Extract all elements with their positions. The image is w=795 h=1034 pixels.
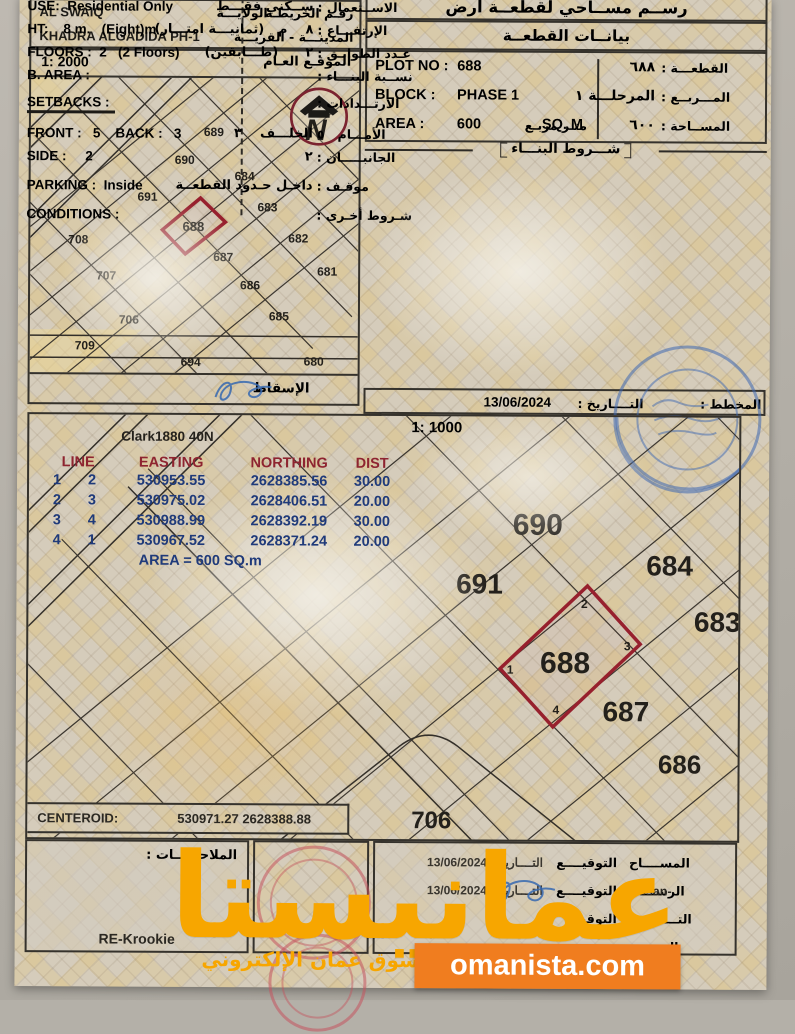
area-row: AREA : 600 SQ. M. متـر مربـع ٦٠٠ المســا… [367,110,765,141]
plot-no-label-ar: القطعـــة : [661,53,761,83]
coord-table-header: LINE EASTING NORTHING DIST [43,454,395,472]
use-ar-value: ســكني فقـــط [216,0,313,19]
barea-ar-label: نســبة البنـــاء : [317,65,419,89]
parking-row: PARKING : Inside داخـل حـدود القطعــة مو… [19,173,421,198]
centeroid-value: 530971.27 2628388.88 [177,811,311,827]
corner-label-2: 2 [581,597,588,611]
plot-label-688: 688 [540,647,590,680]
plot-label-690: 690 [513,509,563,542]
building-conditions-title: شـــروط البنـــاء [507,141,624,158]
plot-label-687: 687 [213,250,233,264]
plot-no-value-ar: ٦٨٨ [630,53,656,82]
plot-label-706: 706 [411,807,451,834]
block-label-ar: المـــربــع : [661,82,761,112]
plot-label-709: 709 [75,338,95,352]
plot-data-heading: بيانــات القطعــة [365,20,767,52]
parking-ar-value: داخـل حـدود القطعــة [175,174,312,198]
ht-ar-value: ٨ م (ثمانيـــة امتـــار) [154,18,313,42]
document-title: رســم مســاحي لقطعــة أرض [365,0,767,22]
plot-no-row: PLOT NO : 688 ٦٨٨ القطعـــة : [367,52,765,83]
notes-label: الملاحظـــات : [146,848,237,863]
coord-table-row: 12530953.552628385.5630.00 [43,470,395,492]
notes-box: الملاحظـــات : RE-Krookie [25,839,250,953]
side-ar-value: ٢ [305,146,313,169]
corner-label-3: 3 [624,639,631,653]
front-back-row: FRONT : 5 BACK : 3 الخلـــف ٣ الأمـــام … [19,121,421,146]
plot-label-686: 686 [240,278,260,292]
plot-label-680: 680 [304,355,324,369]
area-unit-ar: متـر مربـع [525,111,587,140]
coordinates-table: LINE EASTING NORTHING DIST 12530953.5526… [43,454,396,570]
side-row: SIDE : 2 ٢ الجانبـــــان : [19,144,421,169]
back-ar: الخلـــف ٣ [234,122,313,145]
corner-label-1: 1 [507,663,514,677]
floors-row: FLOORS : 2 (2 Floors) ٢ (طـــابقين) عـدد… [19,40,421,65]
col-easting: EASTING [113,455,229,472]
date-label: التــــاريخ : [577,396,643,411]
parking-en: PARKING : Inside [27,173,143,197]
re-krookie-label: RE-Krookie [27,930,247,947]
parking-ar-label: موقـف : [317,175,419,199]
signature-scribble [209,375,299,405]
ht-ar-label: الإرتفـــاع : [317,19,419,43]
checking-label: التــــدقيق [629,908,729,931]
plot-label-691: 691 [456,568,503,599]
floors-ar-value: ٢ (طـــابقين) [205,41,314,65]
plot-no-value: 688 [457,52,481,81]
date-row: 13/06/2024 التــــاريخ : المخطط : [363,388,765,416]
plot-label-684: 684 [646,550,693,581]
plot-label-686: 686 [658,749,702,779]
setbacks-ar-label: الارتـــدادات : [317,92,419,116]
col-line: LINE [43,454,113,470]
side-ar-label: الجانبـــــان : [317,146,419,170]
signature-scribble [485,871,569,915]
ht-en: HT: 8 m. (Eight)m [27,17,156,41]
projection-row: الإسقاط [29,372,357,406]
coord-table-row: 23530975.022628406.5120.00 [43,490,395,512]
omanista-badge: omanista.com [414,943,680,989]
col-northing: NORTHING [229,455,349,472]
use-en: USE: Residential Only [27,0,173,18]
col-dist: DIST [349,456,395,472]
conditions-en: CONDITIONS : [26,202,119,225]
photo-background: AL SWAIQ الولايـــة رقـم الخريطـة KHADRA… [0,0,795,1000]
barea-row: B. AREA : نســبة البنـــاء : [19,63,421,88]
use-row: USE: Residential Only ســكني فقـــط الاس… [19,0,421,19]
survey-date: 13/06/2024 [483,394,551,409]
map-datum: Clark1880 40N [121,429,213,444]
height-row: HT: 8 m. (Eight)m ٨ م (ثمانيـــة امتـــا… [19,17,421,42]
survey-document: AL SWAIQ الولايـــة رقـم الخريطـة KHADRA… [14,0,771,990]
plot-data-table: PLOT NO : 688 ٦٨٨ القطعـــة : BLOCK : PH… [365,50,767,144]
floors-ar-label: عـدد الطوابـق : [317,42,419,66]
plot-label-687: 687 [602,696,649,727]
centeroid-box: CENTEROID: 530971.27 2628388.88 [27,802,349,835]
plot-label-707: 707 [96,268,116,282]
surveyor-label: المســــاح [629,852,729,875]
planner-label: المخطط : [700,397,761,412]
divider [659,150,767,152]
draftsman-name: Hassan- [623,880,695,902]
plot-survey-map: 6906846916836886876867061234 1: 1000 Cla… [25,412,741,843]
area-value: 600 [457,110,481,139]
coord-table-row: 41530967.522628371.2420.00 [43,530,395,552]
plot-label-685: 685 [269,309,289,323]
block-row: BLOCK : PHASE 1 المرحلـــة ١ المـــربــع… [367,81,765,112]
centeroid-label: CENTEROID: [37,810,118,825]
plot-label-682: 682 [288,231,308,245]
subtitle-text: بيانــات القطعــة [503,27,630,46]
conditions-ar-label: شـروط أخـرى : [316,204,418,228]
setbacks-underline [27,110,115,113]
map-scale: 1: 1000 [411,419,462,436]
plot-label-683: 683 [694,607,741,638]
signatures-box: المســــاح التوقيــــع التــــاريخ : 13/… [373,841,738,956]
front-back-en: FRONT : 5 BACK : 3 [27,121,182,145]
area-label-ar: المســاحة : [661,111,761,141]
plot-label-706: 706 [119,313,139,327]
omanista-tagline: سوق عمان الإلكتروني [182,947,437,972]
front-ar: الأمـــام ٥ [317,123,419,147]
area-note: AREA = 600 SQ.m [139,553,395,570]
block-value: PHASE 1 [457,81,519,110]
plot-label-694: 694 [181,355,201,369]
use-ar-label: الاســتعمال : [317,0,419,19]
conditions-row: CONDITIONS : شـروط أخـرى : [18,202,420,227]
area-value-ar: ٦٠٠ [629,111,655,140]
plot-label-681: 681 [317,265,337,279]
coord-table-row: 34530988.992628392.1930.00 [43,510,395,532]
block-value-ar: المرحلـــة ١ [575,82,655,111]
setbacks-row: SETBACKS : الارتـــدادات : [19,90,421,115]
floors-en: FLOORS : 2 (2 Floors) [27,40,179,64]
date-fragment: التــــاريخ : 13/06/2024 [427,851,555,874]
title-text: رســم مســاحي لقطعــة أرض [445,0,687,20]
plot-label-708: 708 [68,232,88,246]
side-en: SIDE : 2 [27,144,93,167]
stamp-box [253,840,370,954]
building-conditions-header: شـــروط البنـــاء [365,142,767,159]
barea-en: B. AREA : [27,63,90,86]
corner-label-4: 4 [552,703,559,717]
